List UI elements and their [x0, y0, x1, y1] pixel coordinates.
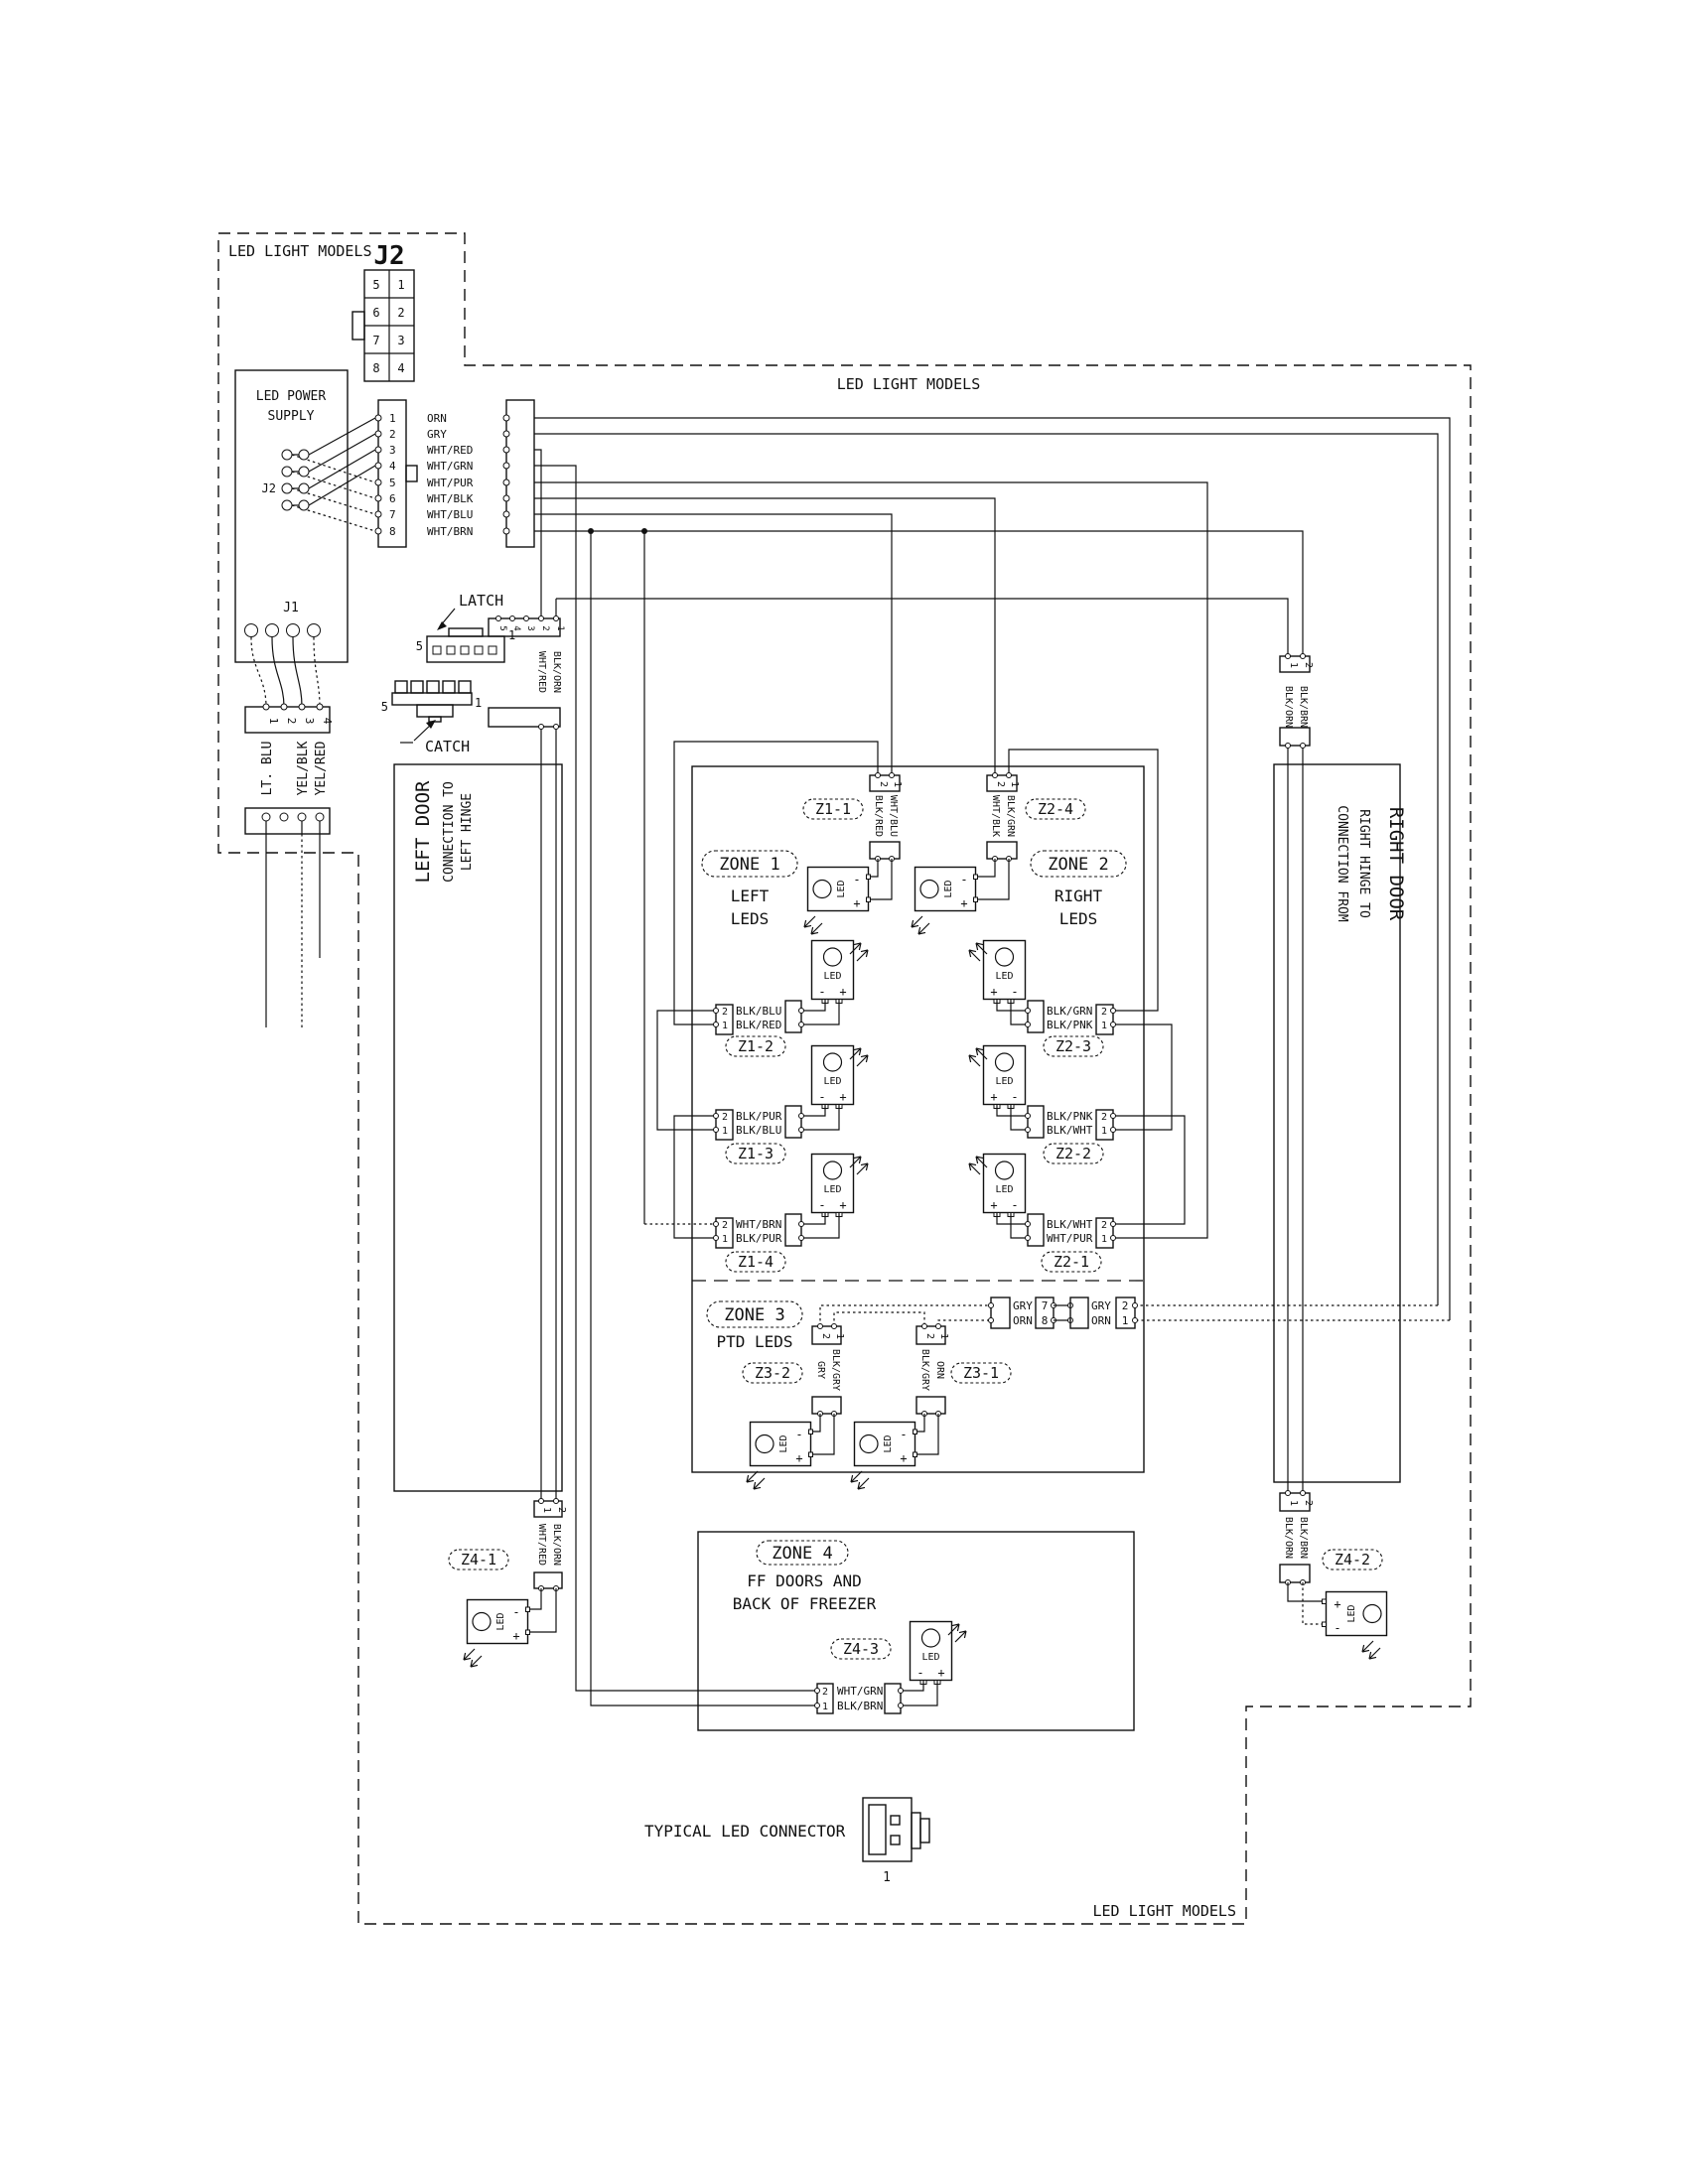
- pin-number: 1: [267, 718, 280, 725]
- pin-number: 1: [834, 1333, 845, 1339]
- j1-door-connector: 1 2 3 4 LT. BLU YEL/BLK YEL/RED: [245, 704, 334, 834]
- j2-title: J2: [373, 241, 404, 271]
- z1-3: 2 1 BLK/PUR BLK/BLU Z1-3: [714, 1046, 869, 1164]
- pin-number: 1: [1101, 1126, 1107, 1137]
- wire-label: BLK/BRN: [1298, 686, 1309, 728]
- power-supply-label: LED POWER: [256, 389, 327, 404]
- connector-tag: Z2-1: [1054, 1253, 1089, 1271]
- pin-number: 7: [389, 508, 396, 521]
- zone2-title: ZONE 2: [1048, 855, 1108, 875]
- wire-label: BLK/PUR: [736, 1110, 782, 1123]
- pin-number: 1: [1122, 1314, 1129, 1327]
- wire-label: BLK/GRN: [1005, 795, 1016, 837]
- connector-tag: Z4-1: [461, 1551, 496, 1569]
- pin-number: 2: [878, 781, 889, 787]
- j2-cell: 6: [372, 306, 379, 320]
- zone3-chain: GRY ORN 7 8 GRY ORN 2 1: [989, 1297, 1138, 1328]
- zone2-sub: RIGHT: [1055, 887, 1103, 905]
- j2-cell: 8: [372, 361, 379, 375]
- region-label-top-center: LED LIGHT MODELS: [837, 375, 981, 393]
- pin-number: 7: [1042, 1299, 1049, 1312]
- pin-number: 1: [389, 412, 396, 425]
- pin-number: 2: [822, 1687, 828, 1698]
- wire-label: WHT/BLU: [427, 508, 473, 521]
- pin-number: 1: [722, 1234, 728, 1245]
- latch-label: LATCH: [459, 592, 503, 610]
- connector-tag: Z3-2: [755, 1364, 790, 1382]
- wire-label: WHT/RED: [427, 444, 473, 457]
- pin-number: 1: [1288, 1500, 1299, 1506]
- z1-4: 2 1 WHT/BRN BLK/PUR Z1-4: [714, 1155, 869, 1273]
- wire-label: WHT/BLU: [888, 795, 899, 837]
- wire-label: BLK/BLU: [736, 1005, 781, 1018]
- pin-number: 2: [722, 1112, 728, 1123]
- catch-assembly: 5 1 CATCH: [381, 681, 482, 755]
- pin-number: 2: [389, 428, 396, 441]
- pin-number: 1: [541, 1507, 552, 1513]
- z3-1: 2 1 BLK/GRY ORN Z3-1: [851, 1324, 1011, 1490]
- catch-label: CATCH: [425, 738, 470, 755]
- z1-1: 2 1 BLK/RED WHT/BLU Z1-1: [803, 773, 903, 935]
- power-supply-label: SUPPLY: [268, 409, 315, 424]
- catch-pin1: 1: [475, 696, 482, 710]
- pin-number: 2: [1101, 1112, 1107, 1123]
- connector-tag: Z3-1: [963, 1364, 999, 1382]
- left-door-label: CONNECTION TO: [442, 781, 457, 883]
- pin-number: 4: [389, 460, 396, 473]
- wire-label: BLK/WHT: [1047, 1218, 1093, 1231]
- j2-cell: 3: [397, 334, 404, 347]
- pin-number: 6: [389, 492, 396, 505]
- zone4-sub: FF DOORS AND: [747, 1571, 862, 1590]
- j1-terminals: [245, 624, 321, 708]
- wire-label: WHT/RED: [536, 651, 547, 693]
- j2-cell: 1: [397, 278, 404, 292]
- right-door-label: RIGHT DOOR: [1385, 807, 1407, 921]
- pin-number: 1: [555, 625, 565, 630]
- wire-label: BLK/GRN: [1047, 1005, 1092, 1018]
- pin-number: 2: [1101, 1220, 1107, 1231]
- region-label-top-left: LED LIGHT MODELS: [228, 242, 372, 260]
- wire-label: BLK/ORN: [1283, 686, 1294, 728]
- typical-label: TYPICAL LED CONNECTOR: [644, 1822, 846, 1841]
- z2-1: 2 1 BLK/WHT WHT/PUR Z2-1: [969, 1155, 1116, 1273]
- j2-cell: 4: [397, 361, 404, 375]
- j1-label: J1: [283, 601, 299, 615]
- wire-label: YEL/RED: [314, 741, 329, 795]
- connector-tag: Z2-4: [1038, 800, 1073, 818]
- connector-tag: Z1-4: [738, 1253, 774, 1271]
- pin-number: 5: [497, 625, 507, 630]
- zone4: ZONE 4 FF DOORS AND BACK OF FREEZER Z4-3…: [698, 1532, 1134, 1730]
- connector-tag: Z1-3: [738, 1145, 774, 1162]
- right-door-column: 1 2 BLK/ORN BLK/BRN CONNECTION FROM RIGH…: [1274, 654, 1407, 1660]
- zone1: ZONE 1 LEFT LEDS 2 1 BLK/RED WHT/BLU Z1-…: [702, 773, 903, 1273]
- pin-number: 2: [722, 1007, 728, 1018]
- j2-connector: J2 5 1 6 2 7 3 8 4: [352, 241, 414, 381]
- wire-label: BLK/WHT: [1047, 1124, 1093, 1137]
- wire-label: BLK/ORN: [1283, 1517, 1294, 1559]
- pin-number: 2: [995, 781, 1006, 787]
- pin-number: 2: [722, 1220, 728, 1231]
- pin-number: 3: [303, 718, 316, 725]
- pin-number: 2: [285, 718, 298, 725]
- harness-connector: 1 2 3 4 5 6 7 8 ORN GRY WHT/RED WHT/GRN …: [375, 400, 534, 547]
- pin-number: 2: [924, 1333, 935, 1339]
- left-door-box: LEFT DOOR CONNECTION TO LEFT HINGE: [394, 764, 562, 1491]
- z4-1: 1 2 WHT/RED BLK/ORN Z4-1: [449, 1499, 567, 1668]
- z4-2: 1 2 BLK/ORN BLK/BRN Z4-2: [1280, 1491, 1387, 1660]
- catch-pin5: 5: [381, 700, 388, 714]
- pin-number: 1: [1101, 1234, 1107, 1245]
- typical-led-connector: TYPICAL LED CONNECTOR 1: [644, 1798, 929, 1885]
- pin-number: 1: [892, 781, 903, 787]
- pin-number: 4: [511, 625, 521, 630]
- pin-number: 2: [1122, 1299, 1129, 1312]
- connector-tag: Z4-3: [843, 1640, 879, 1658]
- wire-label: BLK/BLU: [736, 1124, 781, 1137]
- z4-3: Z4-3 2 1 WHT/GRN BLK/BRN: [815, 1622, 967, 1714]
- wire-label: WHT/PUR: [1047, 1232, 1093, 1245]
- connector-tag: Z1-2: [738, 1037, 774, 1055]
- z2-3: 2 1 BLK/GRN BLK/PNK Z2-3: [969, 941, 1116, 1057]
- zone3-sub: PTD LEDS: [716, 1332, 792, 1351]
- wire-label: WHT/GRN: [837, 1685, 883, 1698]
- pin-number: 1: [1101, 1021, 1107, 1031]
- zone1-sub: LEFT: [731, 887, 770, 905]
- pin-number: 1: [938, 1333, 949, 1339]
- pin-number: 4: [321, 718, 334, 725]
- wire-label: ORN: [1013, 1314, 1033, 1327]
- wire-label: ORN: [1091, 1314, 1111, 1327]
- zone1-sub: LEDS: [731, 909, 770, 928]
- wire-label: BLK/GRY: [830, 1349, 841, 1391]
- pin-number: 2: [540, 625, 550, 630]
- pin-number: 3: [525, 625, 535, 630]
- z1-2: 2 1 BLK/BLU BLK/RED Z1-2: [714, 941, 869, 1057]
- wire-label: BLK/ORN: [551, 651, 562, 693]
- led-wiring-diagram: LED - + LED + - LED - + LED + -: [0, 0, 1688, 2184]
- pin-number: 1: [1009, 781, 1020, 787]
- pin-number: 2: [1101, 1007, 1107, 1018]
- wire-label: BLK/ORN: [551, 1524, 562, 1566]
- pin-number: 1: [1288, 662, 1299, 668]
- pin-number: 2: [1303, 662, 1314, 668]
- j2-terminals: [282, 450, 309, 510]
- latch-5pin-connector: 5 4 3 2 1 WHT/RED BLK/ORN: [489, 616, 565, 730]
- pin-number: 2: [820, 1333, 831, 1339]
- connector-tag: Z2-2: [1055, 1145, 1091, 1162]
- connector-tag: Z4-2: [1335, 1551, 1370, 1569]
- wire-label: GRY: [427, 428, 447, 441]
- pin-number: 1: [822, 1702, 828, 1712]
- wire-label: LT. BLU: [260, 742, 275, 796]
- wire-label: BLK/PUR: [736, 1232, 782, 1245]
- zone2: ZONE 2 RIGHT LEDS 2 1 WHT/BLK BLK/GRN Z2…: [912, 773, 1126, 1273]
- typical-pin: 1: [883, 1870, 891, 1885]
- j2-small-label: J2: [262, 481, 276, 495]
- pin-number: 8: [1042, 1314, 1049, 1327]
- wire-label: BLK/RED: [873, 795, 884, 837]
- pin-number: 1: [722, 1126, 728, 1137]
- connector-tag: Z1-1: [815, 800, 851, 818]
- right-door-label: RIGHT HINGE TO: [1356, 809, 1371, 918]
- region-label-bottom-right: LED LIGHT MODELS: [1093, 1902, 1237, 1920]
- connector-tag: Z2-3: [1055, 1037, 1091, 1055]
- zone4-title: ZONE 4: [772, 1544, 832, 1564]
- latch-pin5: 5: [416, 639, 423, 653]
- pin-number: 2: [556, 1507, 567, 1513]
- wire-label: GRY: [1091, 1299, 1111, 1312]
- wire-label: BLK/RED: [736, 1019, 781, 1031]
- zone3: ZONE 3 PTD LEDS 2 1 GRY BLK/GRY Z3-2 2 1…: [707, 1297, 1138, 1489]
- wire-label: BLK/PNK: [1047, 1019, 1093, 1031]
- right-door-label: CONNECTION FROM: [1335, 805, 1349, 922]
- wire-label: BLK/BRN: [837, 1700, 883, 1712]
- j2-cell: 5: [372, 278, 379, 292]
- z2-2: 2 1 BLK/PNK BLK/WHT Z2-2: [969, 1046, 1116, 1164]
- zone2-sub: LEDS: [1059, 909, 1098, 928]
- wiring: [266, 418, 1450, 1706]
- pin-number: 2: [1303, 1500, 1314, 1506]
- pin-number: 5: [389, 477, 396, 489]
- wire-label: BLK/GRY: [919, 1349, 930, 1391]
- zone1-title: ZONE 1: [719, 855, 779, 875]
- left-door-label: LEFT HINGE: [460, 793, 475, 871]
- wire-label: GRY: [1013, 1299, 1033, 1312]
- pin-number: 3: [389, 444, 396, 457]
- wire-label: GRY: [815, 1361, 826, 1379]
- pin-number: 1: [722, 1021, 728, 1031]
- wire-label: YEL/BLK: [296, 741, 311, 795]
- wire-label: WHT/BRN: [736, 1218, 781, 1231]
- wire-label: WHT/BLK: [427, 492, 474, 505]
- wire-label: WHT/PUR: [427, 477, 474, 489]
- wire-label: WHT/RED: [536, 1524, 547, 1566]
- wire-label: ORN: [427, 412, 447, 425]
- led-power-supply: LED POWER SUPPLY J2 J1: [235, 370, 348, 707]
- j2-cell: 2: [397, 306, 404, 320]
- wire-label: WHT/BLK: [990, 795, 1001, 837]
- wiring-diagram-page: LED - + LED + - LED - + LED + -: [0, 0, 1688, 2184]
- j2-cell: 7: [372, 334, 379, 347]
- zone3-title: ZONE 3: [724, 1305, 784, 1325]
- pin-number: 8: [389, 525, 396, 538]
- wire-label: BLK/BRN: [1298, 1517, 1309, 1559]
- zone4-sub: BACK OF FREEZER: [733, 1594, 877, 1613]
- wire-label: ORN: [934, 1361, 945, 1379]
- wire-label: BLK/PNK: [1047, 1110, 1093, 1123]
- wire-label: WHT/BRN: [427, 525, 473, 538]
- left-door-label: LEFT DOOR: [412, 780, 434, 884]
- wire-label: WHT/GRN: [427, 460, 473, 473]
